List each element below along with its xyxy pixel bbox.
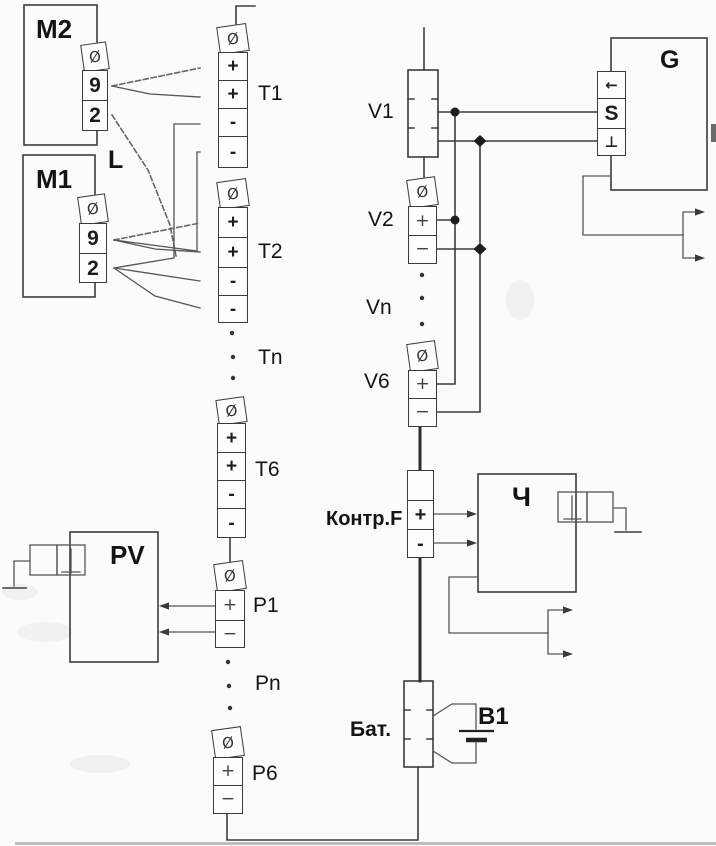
terminal-cell: − <box>408 398 437 427</box>
terminal-cell: + <box>408 206 437 236</box>
label-v1: V1 <box>368 100 394 124</box>
terminal-cell: Ø <box>216 178 250 210</box>
terminal-cell: Ø <box>406 176 439 209</box>
ch-output-fork <box>449 577 573 658</box>
wiring-diagram: M2 M1 L PV G Ч Бат. В1 Контр.F T1 T2 Tn … <box>0 0 716 846</box>
label-b1: В1 <box>478 703 509 731</box>
terminal-cell: + <box>218 207 248 238</box>
label-v2: V2 <box>368 208 394 232</box>
terminal-cell: + <box>218 80 248 109</box>
terminal-cell: + <box>218 237 248 268</box>
terminal-cell: Ø <box>213 560 247 593</box>
label-t1: T1 <box>258 82 283 106</box>
terminal-cell: + <box>408 370 437 399</box>
terminal-cell: - <box>218 267 248 296</box>
label-t6: T6 <box>255 458 280 482</box>
ellipsis-dots <box>226 273 424 710</box>
label-l: L <box>108 146 123 175</box>
label-p6: P6 <box>252 762 278 786</box>
terminal-cell: Ø <box>215 396 247 426</box>
label-m2: M2 <box>36 14 72 45</box>
pv-connector <box>14 545 85 586</box>
terminal-cell: Ø <box>216 23 250 55</box>
label-kontrf: Контр.F <box>326 508 402 531</box>
terminal-cell: - <box>217 508 246 538</box>
terminal-cell: - <box>407 529 434 558</box>
v-bus-wires <box>424 108 597 413</box>
g-output-fork <box>583 176 705 262</box>
battery-box <box>404 681 433 767</box>
terminal-cell: − <box>215 620 245 648</box>
terminal-cell: − <box>408 235 437 264</box>
kontrf-ch-arrows <box>434 510 477 546</box>
p1-pv-arrows <box>159 602 215 635</box>
terminal-cell: + <box>215 590 245 621</box>
terminal-cell: 2 <box>82 100 108 131</box>
label-pn: Pn <box>255 672 281 696</box>
terminal-cell: - <box>218 108 248 137</box>
terminal-cell: ⊥ <box>597 128 626 156</box>
label-pv: PV <box>110 540 145 571</box>
terminal-cell <box>407 470 434 501</box>
label-p1: P1 <box>253 594 279 618</box>
terminal-cell: + <box>218 52 248 81</box>
terminal-cell: 9 <box>79 223 107 254</box>
terminal-cell: - <box>217 480 246 509</box>
terminal-cell: + <box>217 452 246 481</box>
terminal-cell: + <box>217 423 246 453</box>
terminal-cell: 2 <box>79 253 107 283</box>
label-battery: Бат. <box>350 718 391 742</box>
label-ch: Ч <box>512 482 531 513</box>
terminal-cell: - <box>218 295 248 323</box>
terminal-cell: Ø <box>406 340 439 373</box>
terminal-cell: 9 <box>82 70 108 101</box>
terminal-cell: S <box>597 98 626 129</box>
ch-connector <box>558 492 626 530</box>
label-m1: M1 <box>36 164 72 195</box>
sensor-wires <box>112 68 200 308</box>
label-tn: Tn <box>258 346 283 370</box>
v1-box <box>408 70 438 157</box>
terminal-cell: - <box>218 136 248 168</box>
terminal-cell: − <box>213 785 243 814</box>
label-v6: V6 <box>364 370 390 394</box>
terminal-cell: + <box>213 757 243 786</box>
terminal-cell: Ø <box>77 193 109 226</box>
label-t2: T2 <box>258 240 283 264</box>
terminal-cell: + <box>407 500 434 530</box>
terminal-cell: Ø <box>80 41 110 72</box>
label-g: G <box>660 46 679 75</box>
terminal-cell: ← <box>597 71 626 99</box>
terminal-cell: Ø <box>211 726 245 760</box>
label-vn: Vn <box>366 296 392 320</box>
